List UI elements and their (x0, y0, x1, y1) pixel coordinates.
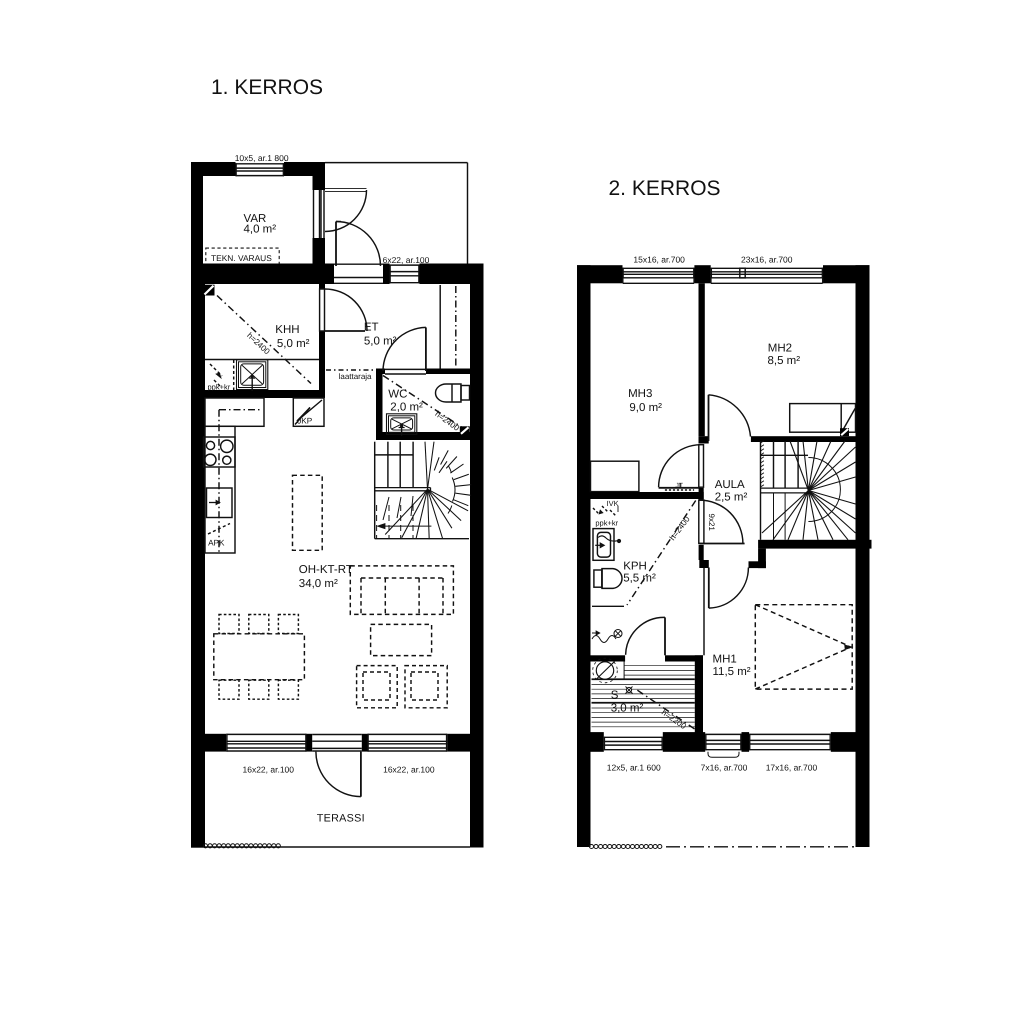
svg-text:2,0 m²: 2,0 m² (390, 401, 423, 413)
svg-text:5,0 m²: 5,0 m² (277, 338, 310, 350)
svg-text:JKP: JKP (297, 417, 313, 426)
svg-text:9,0 m²: 9,0 m² (629, 402, 662, 414)
svg-text:34,0 m²: 34,0 m² (299, 578, 338, 590)
svg-text:APK: APK (208, 539, 225, 548)
svg-text:4,0 m²: 4,0 m² (244, 224, 277, 236)
svg-text:8,5 m²: 8,5 m² (768, 355, 801, 367)
svg-text:10x5, ar.1 800: 10x5, ar.1 800 (235, 153, 289, 163)
svg-text:AULA: AULA (715, 479, 745, 491)
svg-text:MH1: MH1 (713, 654, 737, 666)
svg-text:JT: JT (676, 483, 684, 490)
svg-text:16x22, ar.100: 16x22, ar.100 (243, 765, 295, 775)
svg-text:WC: WC (388, 389, 407, 401)
svg-text:23x16, ar.700: 23x16, ar.700 (741, 255, 793, 265)
svg-text:h=2400: h=2400 (668, 514, 692, 542)
svg-text:11,5 m²: 11,5 m² (713, 666, 751, 678)
svg-text:h=2200: h=2200 (660, 708, 688, 731)
svg-text:5,5 m²: 5,5 m² (623, 572, 656, 584)
svg-text:ppk+kr: ppk+kr (595, 518, 618, 527)
svg-text:ET: ET (364, 321, 379, 333)
svg-text:h=2400: h=2400 (433, 409, 461, 433)
svg-text:MH2: MH2 (768, 343, 792, 355)
svg-text:17x16, ar.700: 17x16, ar.700 (766, 763, 818, 773)
svg-text:OH-KT-RT: OH-KT-RT (299, 564, 353, 576)
svg-text:TEKN. VARAUS: TEKN. VARAUS (211, 253, 272, 263)
svg-text:TERASSI: TERASSI (317, 813, 365, 825)
svg-text:ppk+kr: ppk+kr (208, 383, 231, 392)
svg-text:3,0 m²: 3,0 m² (611, 703, 644, 715)
svg-text:7x16, ar.700: 7x16, ar.700 (701, 763, 748, 773)
svg-text:9x21: 9x21 (707, 514, 716, 532)
svg-text:KPH: KPH (623, 560, 647, 572)
svg-text:12x5, ar.1 600: 12x5, ar.1 600 (607, 763, 661, 773)
svg-text:2. KERROS: 2. KERROS (609, 177, 721, 200)
svg-text:16x22, ar.100: 16x22, ar.100 (383, 765, 435, 775)
svg-text:2,5 m²: 2,5 m² (715, 491, 748, 503)
svg-text:1. KERROS: 1. KERROS (211, 76, 323, 99)
svg-text:15x16, ar.700: 15x16, ar.700 (633, 255, 685, 265)
svg-text:laattaraja: laattaraja (339, 372, 372, 381)
svg-text:MH3: MH3 (628, 388, 652, 400)
svg-text:S: S (611, 689, 619, 701)
svg-text:KHH: KHH (275, 324, 299, 336)
svg-text:IVK: IVK (607, 499, 619, 508)
